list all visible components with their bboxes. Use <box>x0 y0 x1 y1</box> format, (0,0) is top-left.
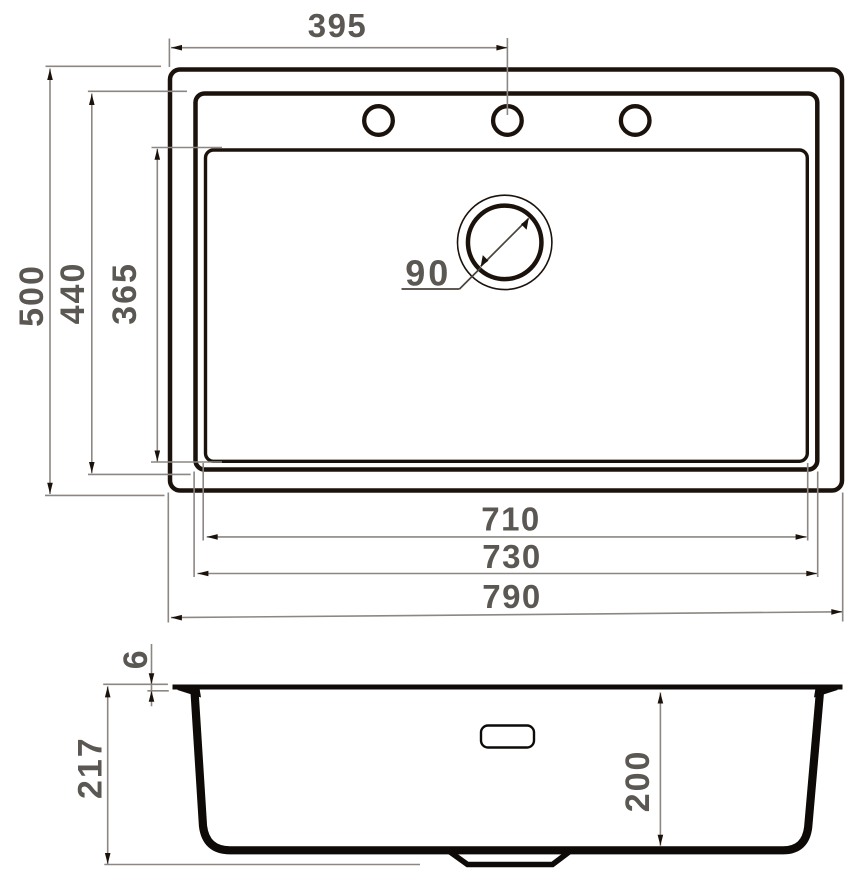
svg-text:200: 200 <box>619 750 657 813</box>
svg-text:395: 395 <box>308 7 368 44</box>
svg-text:90: 90 <box>405 253 451 294</box>
svg-text:730: 730 <box>482 538 542 575</box>
svg-text:500: 500 <box>13 264 51 327</box>
svg-text:6: 6 <box>117 648 155 669</box>
svg-text:790: 790 <box>482 578 542 615</box>
svg-text:365: 365 <box>106 262 144 325</box>
svg-text:217: 217 <box>71 736 109 799</box>
svg-text:440: 440 <box>54 262 92 325</box>
svg-text:710: 710 <box>481 501 541 538</box>
